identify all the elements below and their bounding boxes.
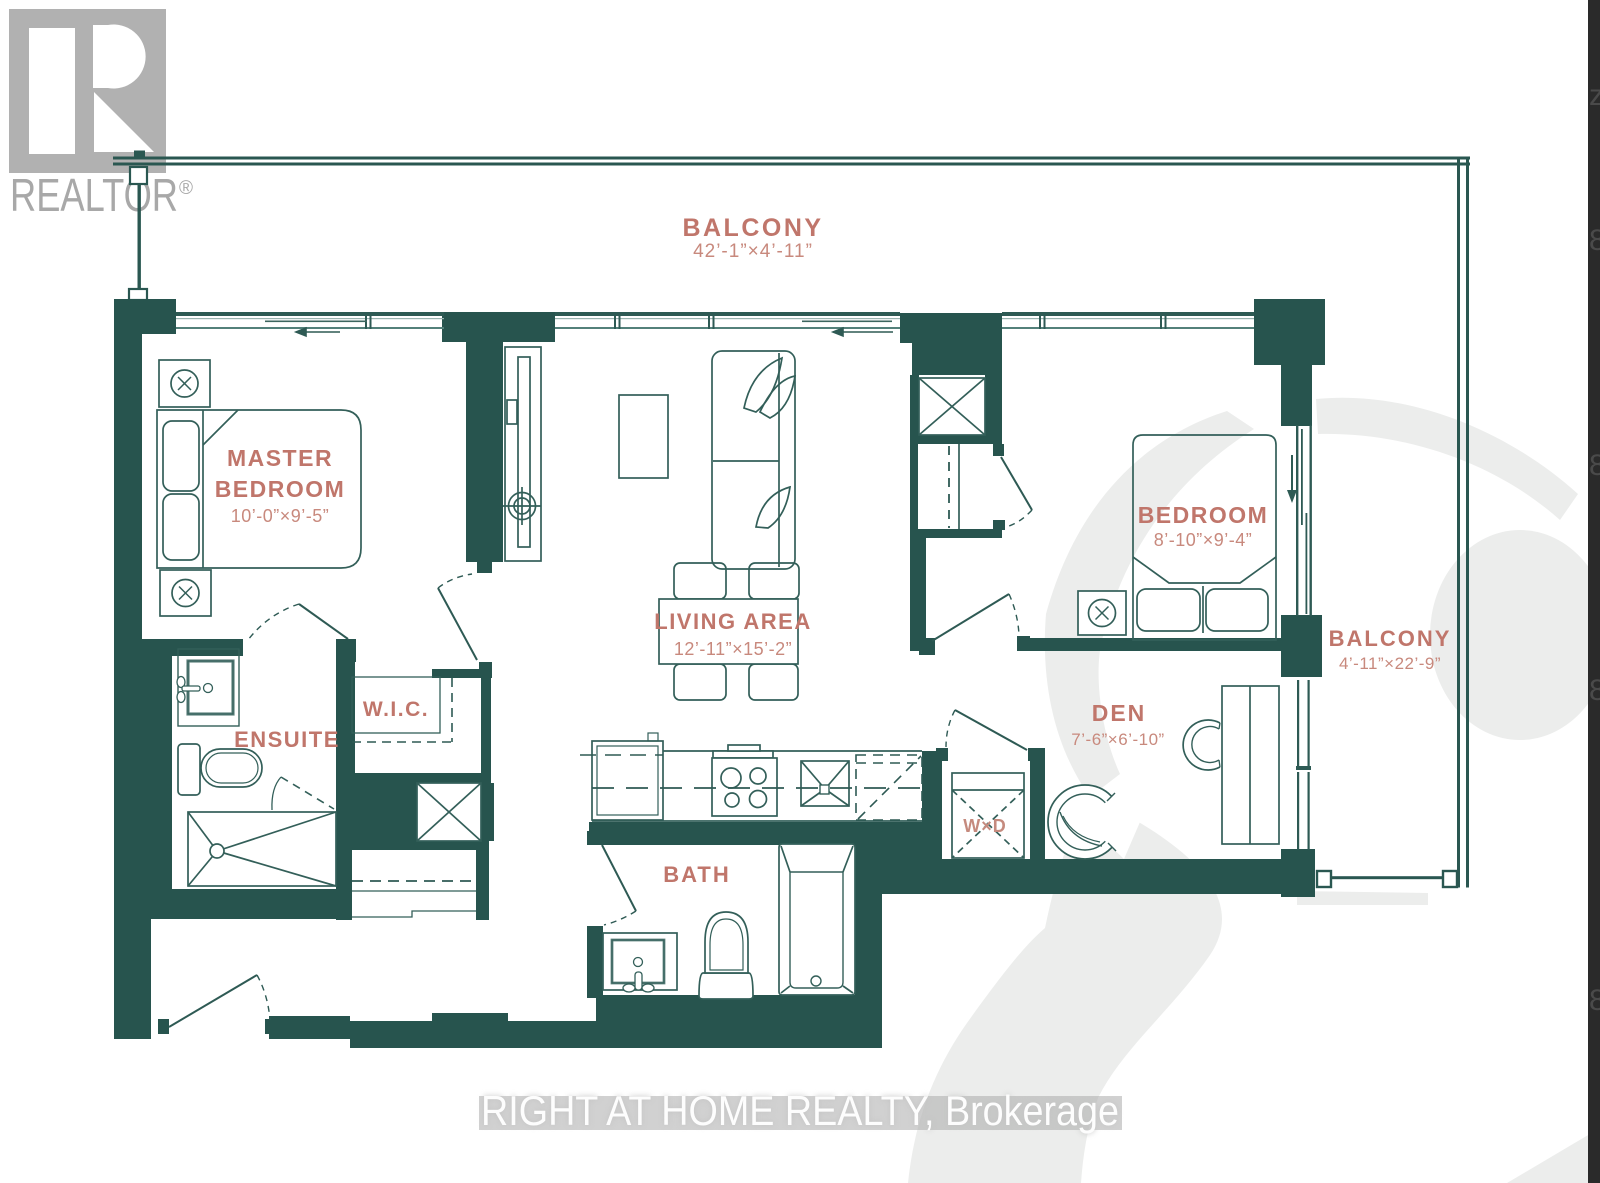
- svg-text:8’-10”×9’-4”: 8’-10”×9’-4”: [1154, 530, 1253, 550]
- svg-text:BATH: BATH: [663, 862, 730, 887]
- svg-text:W.I.C.: W.I.C.: [363, 698, 429, 721]
- svg-text:12’-11”×15’-2”: 12’-11”×15’-2”: [674, 639, 792, 659]
- svg-text:DEN: DEN: [1092, 700, 1147, 726]
- svg-text:4’-11”×22’-9”: 4’-11”×22’-9”: [1339, 654, 1441, 673]
- svg-text:RIGHT AT HOME REALTY, Brokerag: RIGHT AT HOME REALTY, Brokerage: [481, 1087, 1119, 1134]
- svg-text:z: z: [1589, 79, 1600, 112]
- svg-text:ENSUITE: ENSUITE: [234, 727, 340, 752]
- svg-text:8: 8: [1589, 674, 1600, 707]
- svg-text:BEDROOM: BEDROOM: [215, 476, 346, 502]
- svg-text:BALCONY: BALCONY: [682, 214, 823, 242]
- svg-text:LIVING AREA: LIVING AREA: [654, 609, 811, 634]
- svg-text:MASTER: MASTER: [227, 445, 333, 471]
- svg-text:7’-6”×6’-10”: 7’-6”×6’-10”: [1071, 730, 1164, 749]
- svg-text:10’-0”×9’-5”: 10’-0”×9’-5”: [231, 506, 330, 526]
- svg-text:REALTOR: REALTOR: [10, 169, 178, 221]
- svg-text:8: 8: [1589, 224, 1600, 257]
- svg-text:®: ®: [179, 178, 193, 199]
- svg-text:8: 8: [1589, 449, 1600, 482]
- svg-text:W×D: W×D: [963, 816, 1007, 836]
- svg-text:BALCONY: BALCONY: [1329, 626, 1452, 651]
- svg-text:42’-1”×4’-11”: 42’-1”×4’-11”: [693, 241, 813, 262]
- svg-text:BEDROOM: BEDROOM: [1138, 502, 1269, 528]
- svg-text:8: 8: [1589, 984, 1600, 1017]
